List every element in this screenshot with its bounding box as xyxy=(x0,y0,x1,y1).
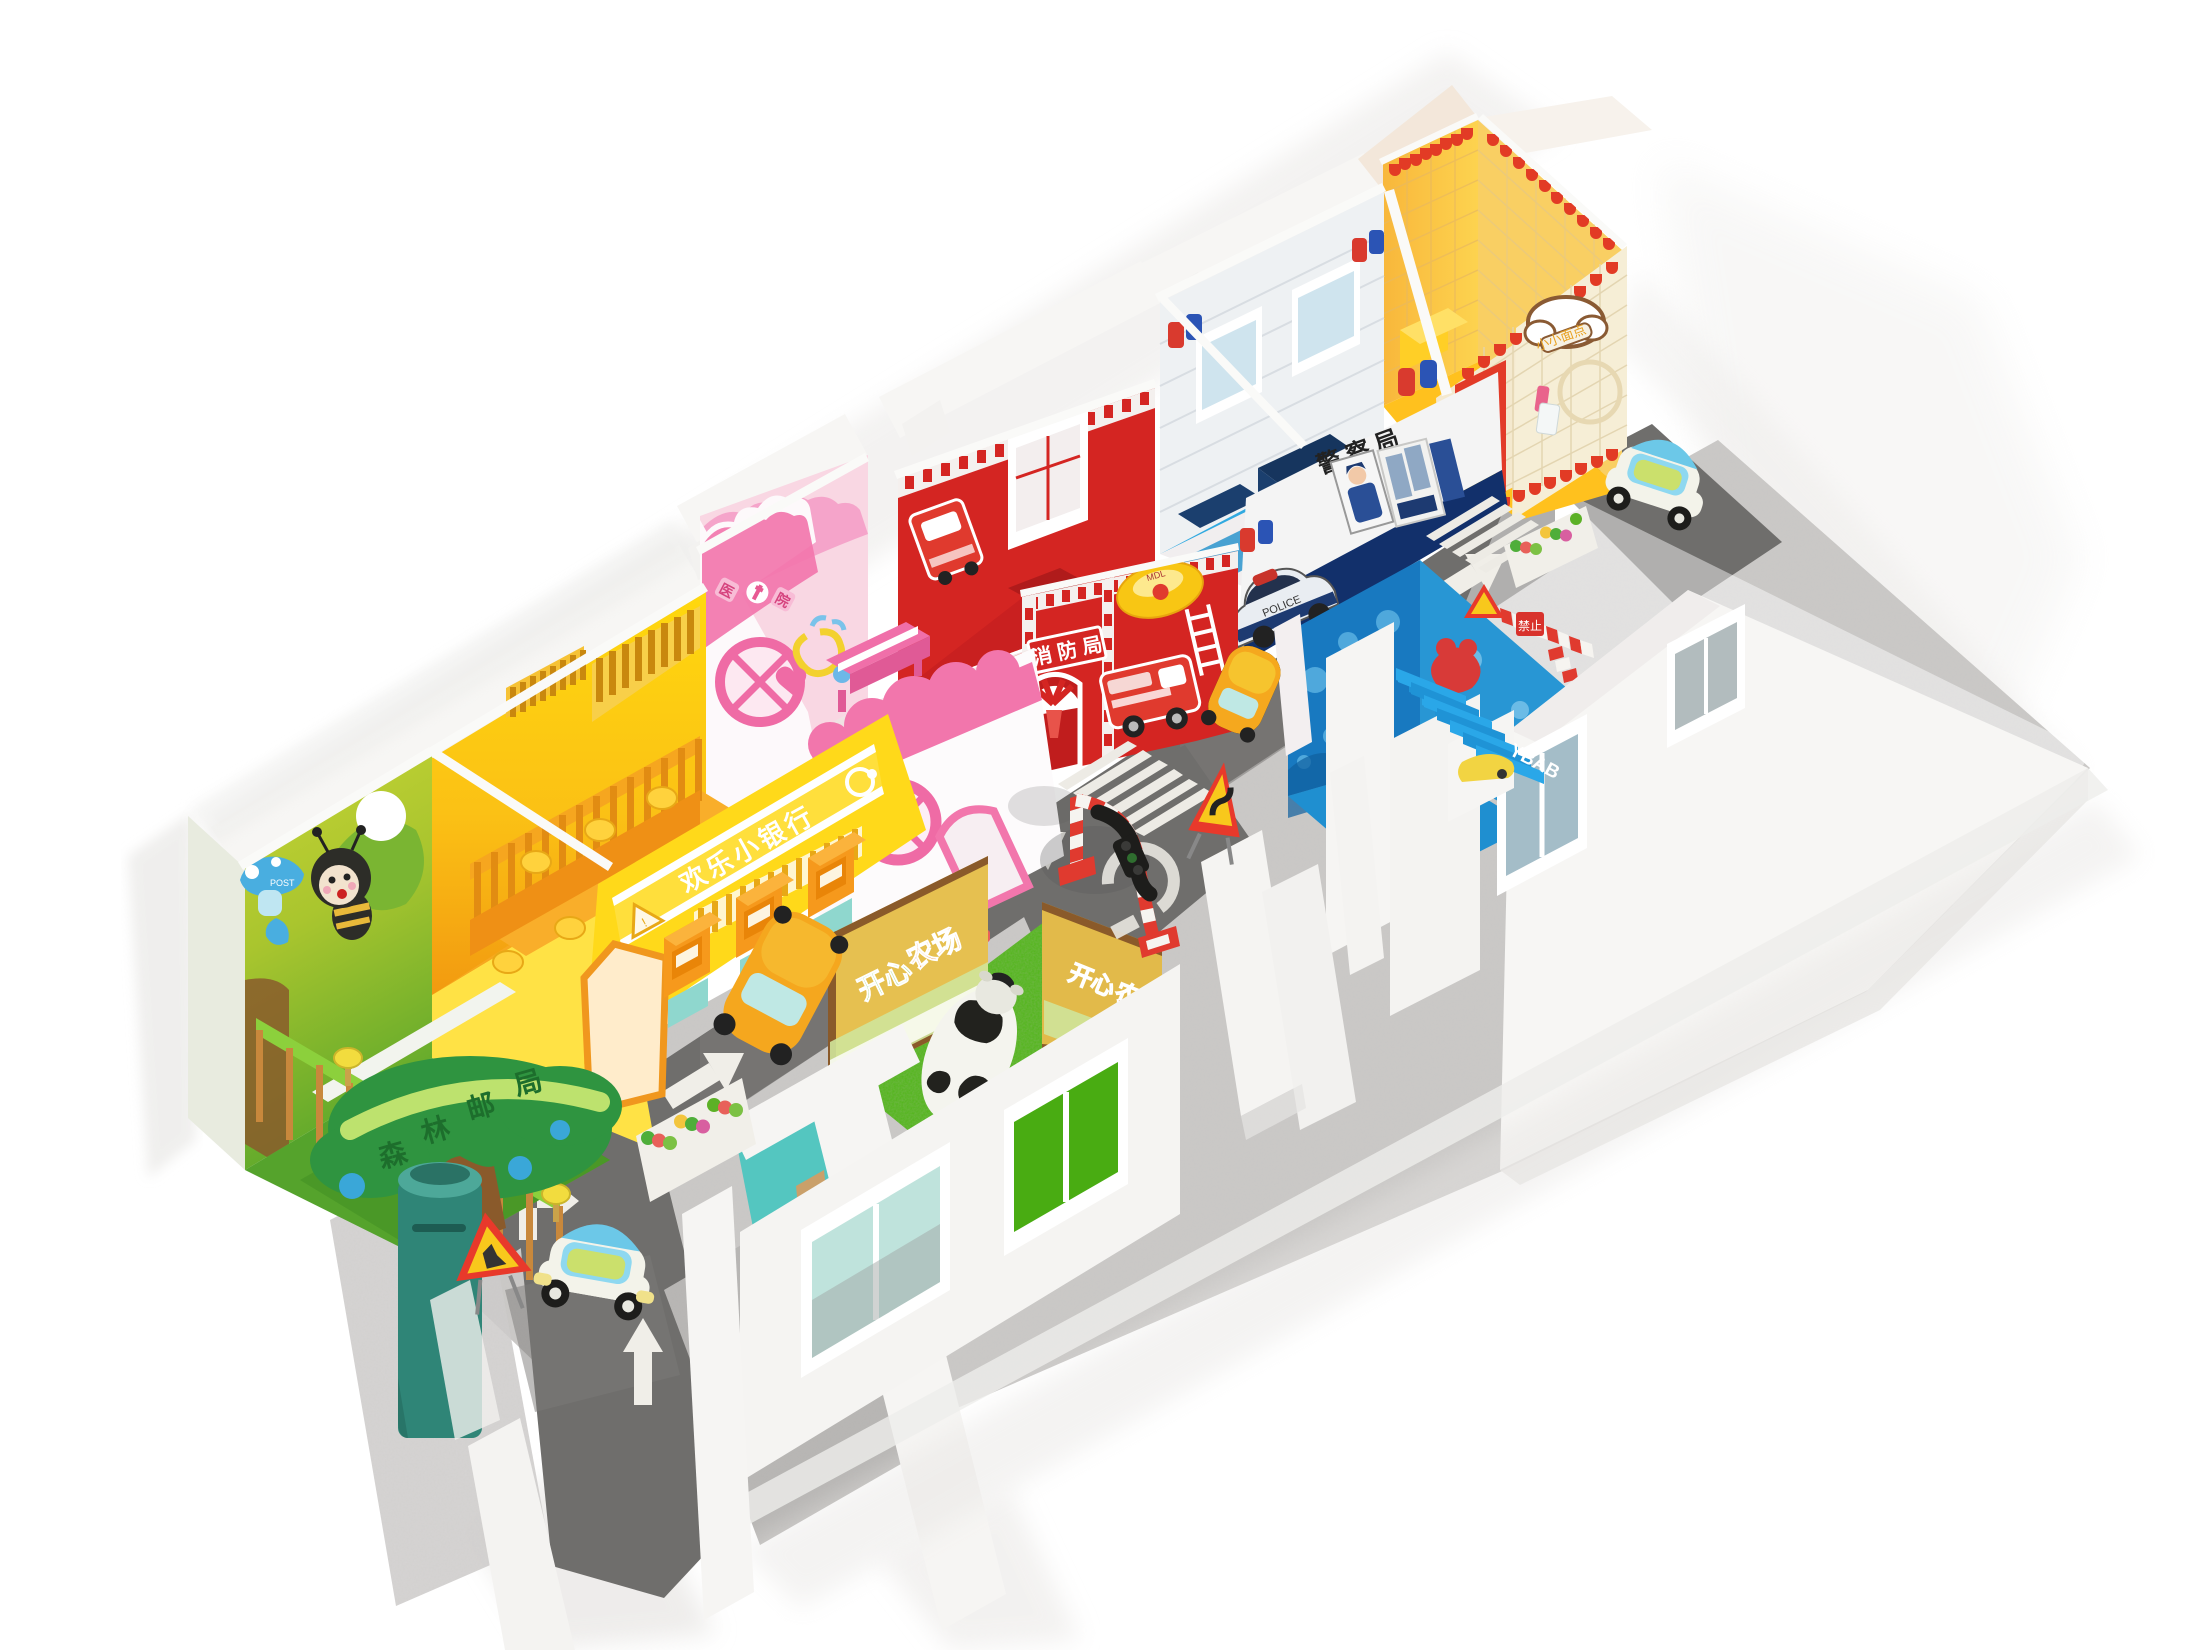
svg-text:禁止: 禁止 xyxy=(1518,619,1542,633)
svg-text:POST: POST xyxy=(270,878,295,888)
